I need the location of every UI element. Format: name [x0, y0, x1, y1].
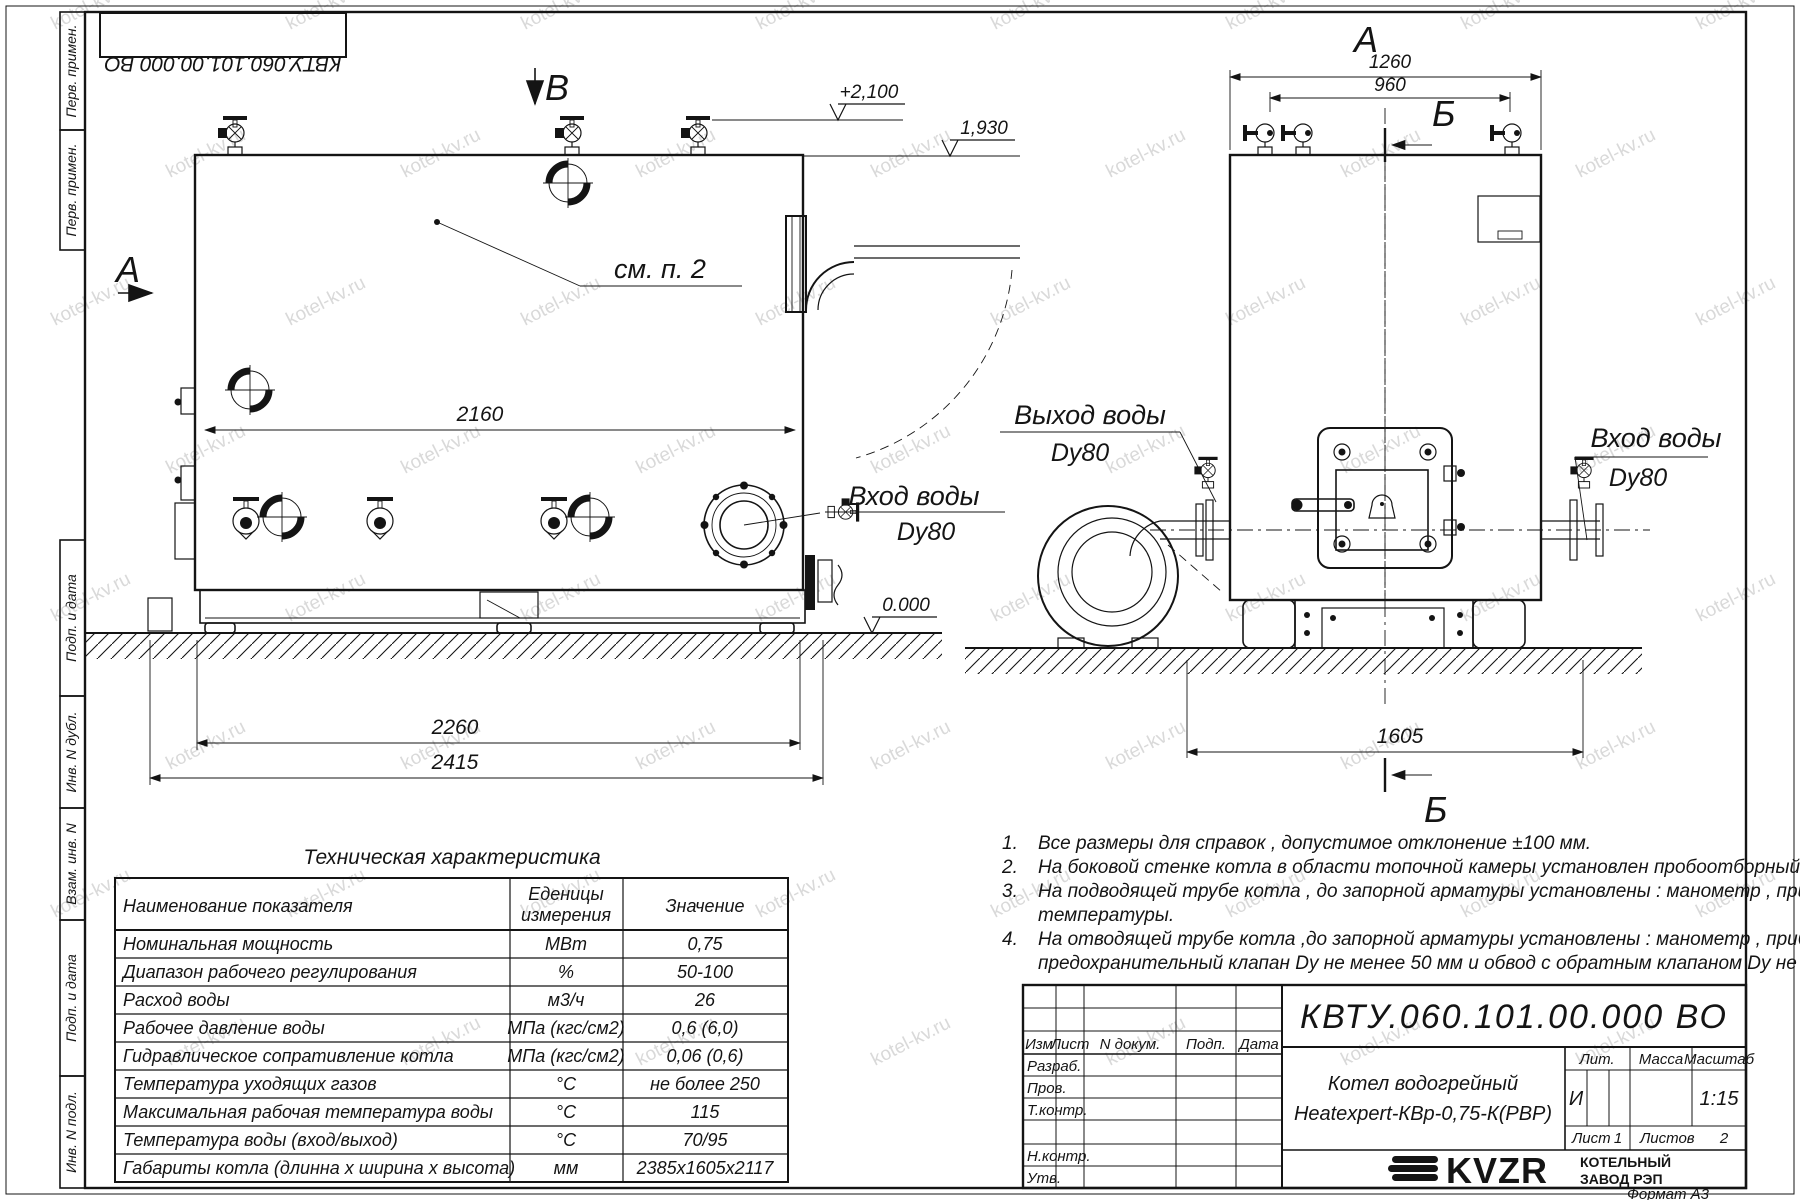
stamp-role-label: Пров. — [1027, 1080, 1067, 1097]
section-marker-B-top: Б — [1432, 93, 1455, 134]
watermark: kotel-kv.ru — [1458, 0, 1544, 34]
company-name-1: КОТЕЛЬНЫЙ — [1580, 1153, 1671, 1170]
watermark: kotel-kv.ru — [988, 0, 1074, 34]
th-units-2: измерения — [521, 905, 611, 925]
side-inlet-label: Вход воды — [848, 481, 979, 511]
company-logo: KVZR КОТЕЛЬНЫЙ ЗАВОД РЭП — [1388, 1150, 1671, 1191]
row-units: °С — [556, 1074, 577, 1094]
strip-bottom-0: Подп. и дата — [63, 574, 79, 662]
row-name: Номинальная мощность — [123, 934, 333, 954]
row-value: 70/95 — [682, 1130, 728, 1150]
watermark: kotel-kv.ru — [1458, 273, 1544, 331]
stamp-header-cell: Подп. — [1186, 1036, 1226, 1053]
tech-table: Техническая характеристика Наименование … — [115, 846, 788, 1182]
sheets-value: 2 — [1719, 1130, 1729, 1147]
watermark: kotel-kv.ru — [1223, 0, 1309, 34]
note-line: Все размеры для справок , допустимое отк… — [1038, 833, 1591, 854]
front-outlet-dn: Dy80 — [1051, 439, 1109, 467]
boiler-technical-drawing: kotel-kv.rukotel-kv.rukotel-kv.rukotel-k… — [0, 0, 1800, 1200]
stamp-header-cell: Изм — [1025, 1036, 1053, 1053]
see-note-label: см. п. 2 — [614, 254, 706, 284]
row-name: Температура воды (вход/выход) — [123, 1130, 398, 1150]
watermark: kotel-kv.ru — [1693, 273, 1779, 331]
watermark: kotel-kv.ru — [868, 1013, 954, 1071]
row-units: МВт — [545, 934, 587, 954]
view-marker-B: В — [545, 67, 569, 108]
note-number: 3. — [1002, 881, 1018, 902]
watermark: kotel-kv.ru — [753, 865, 839, 923]
sheets-label: Листов — [1639, 1130, 1695, 1147]
row-name: Рабочее давление воды — [123, 1018, 325, 1038]
watermark: kotel-kv.ru — [633, 125, 719, 183]
row-value: 115 — [691, 1102, 721, 1122]
watermark: kotel-kv.ru — [283, 273, 369, 331]
watermark: kotel-kv.ru — [1223, 569, 1309, 627]
strip-top-0: Перв. примен. — [63, 24, 79, 117]
dim-2415: 2415 — [431, 751, 479, 774]
view-marker-A-left: А — [114, 249, 140, 290]
watermark: kotel-kv.ru — [518, 273, 604, 331]
strip-bottom-2: Взам. инв. N — [63, 822, 79, 904]
row-units: % — [558, 962, 574, 982]
row-units: °С — [556, 1102, 577, 1122]
watermark: kotel-kv.ru — [283, 0, 369, 34]
th-units-1: Еденицы — [528, 884, 603, 904]
watermark: kotel-kv.ru — [988, 569, 1074, 627]
elevation-mid: 1,930 — [960, 118, 1008, 139]
mass-header: Масса — [1639, 1051, 1683, 1068]
stamp-role-label: Разраб. — [1027, 1058, 1081, 1075]
row-value: 0,06 (0,6) — [666, 1046, 743, 1066]
watermark: kotel-kv.ru — [633, 717, 719, 775]
watermark: kotel-kv.ru — [163, 125, 249, 183]
view-marker-A-top: А — [1352, 19, 1378, 60]
sheet-value: 1 — [1614, 1130, 1622, 1147]
watermark: kotel-kv.ru — [163, 421, 249, 479]
row-name: Температура уходящих газов — [123, 1074, 377, 1094]
row-units: МПа (кгс/см2) — [507, 1018, 625, 1038]
dim-2160: 2160 — [456, 403, 504, 426]
note-line: На отводящей трубе котла ,до запорной ар… — [1038, 929, 1800, 950]
stamp-role-label: Т.контр. — [1027, 1102, 1088, 1119]
scale-header: Масштаб — [1684, 1051, 1755, 1068]
row-name: Диапазон рабочего регулирования — [121, 962, 417, 982]
watermark: kotel-kv.ru — [1338, 125, 1424, 183]
watermark: kotel-kv.ru — [1573, 717, 1659, 775]
row-units: м3/ч — [548, 990, 585, 1010]
watermark: kotel-kv.ru — [753, 273, 839, 331]
th-value: Значение — [665, 896, 744, 916]
watermark: kotel-kv.ru — [1458, 569, 1544, 627]
stamp-header-cell: N докум. — [1100, 1036, 1161, 1053]
front-inlet-label: Вход воды — [1590, 423, 1721, 453]
watermark: kotel-kv.ru — [163, 717, 249, 775]
strip-top-1: Перв. примен. — [63, 143, 79, 236]
row-name: Расход воды — [123, 990, 230, 1010]
format-label: Формат А3 — [1627, 1186, 1710, 1200]
stamp-header-cell: Дата — [1237, 1036, 1279, 1053]
litera-header: Лит. — [1578, 1051, 1614, 1068]
watermark: kotel-kv.ru — [518, 0, 604, 34]
row-value: 50-100 — [677, 962, 733, 982]
front-inlet-dn: Dy80 — [1609, 464, 1667, 492]
row-value: 2385х1605х2117 — [636, 1158, 775, 1178]
note-number: 2. — [1001, 857, 1018, 878]
front-outlet-label: Выход воды — [1014, 400, 1166, 430]
watermark: kotel-kv.ru — [1693, 0, 1779, 34]
stamp-role-label: Утв. — [1026, 1170, 1061, 1187]
watermark: kotel-kv.ru — [868, 717, 954, 775]
row-value: 0,6 (6,0) — [671, 1018, 738, 1038]
watermark: kotel-kv.ru — [1693, 569, 1779, 627]
note-line: предохранительный клапан Dу не менее 50 … — [1038, 953, 1800, 974]
watermark: kotel-kv.ru — [753, 0, 839, 34]
product-title-1: Котел водогрейный — [1328, 1073, 1518, 1095]
dim-960: 960 — [1374, 75, 1406, 96]
row-value: 26 — [694, 990, 716, 1010]
row-units: °С — [556, 1130, 577, 1150]
logo-text: KVZR — [1446, 1150, 1548, 1191]
row-units: мм — [554, 1158, 579, 1178]
litera-value: И — [1569, 1088, 1584, 1110]
th-name: Наименование показателя — [123, 896, 353, 916]
row-units: МПа (кгс/см2) — [507, 1046, 625, 1066]
stamp-header-cell: Лист — [1050, 1036, 1090, 1053]
section-marker-B-bottom: Б — [1424, 789, 1447, 830]
row-value: 0,75 — [687, 934, 723, 954]
product-title-2: Heatexpert-КВр-0,75-К(РВР) — [1294, 1103, 1552, 1125]
title-block: КВТУ.060.101.00.000 ВО Котел водогрейный… — [1023, 985, 1755, 1200]
scale-value: 1:15 — [1700, 1088, 1740, 1110]
doc-number: КВТУ.060.101.00.000 ВО — [1300, 998, 1728, 1036]
note-line: На боковой стенке котла в области топочн… — [1038, 857, 1800, 878]
table-title: Техническая характеристика — [303, 846, 600, 869]
watermark: kotel-kv.ru — [633, 421, 719, 479]
outlet-pipe — [1130, 457, 1230, 592]
note-number: 1. — [1002, 833, 1018, 854]
strip-bottom-3: Подп. и дата — [63, 954, 79, 1042]
elevation-top: +2,100 — [840, 82, 899, 103]
watermark: kotel-kv.ru — [1573, 125, 1659, 183]
watermark: kotel-kv.ru — [1103, 717, 1189, 775]
watermark: kotel-kv.ru — [868, 125, 954, 183]
strip-bottom-1: Инв. N дубл. — [63, 711, 79, 792]
doc-number-rotated: КВТУ.060.101.00.000 ВО — [104, 52, 341, 75]
dim-2260: 2260 — [431, 716, 479, 739]
watermark: kotel-kv.ru — [1103, 125, 1189, 183]
row-name: Габариты котла (длинна х ширина х высота… — [123, 1158, 515, 1178]
notes: 1.Все размеры для справок , допустимое о… — [1001, 833, 1800, 974]
watermark: kotel-kv.ru — [1223, 273, 1309, 331]
dim-1605: 1605 — [1377, 725, 1424, 748]
company-name-2: ЗАВОД РЭП — [1580, 1171, 1663, 1187]
row-value: не более 250 — [650, 1074, 760, 1094]
watermark: kotel-kv.ru — [398, 421, 484, 479]
front-view: 1260 960 А Б Выход воды Dy80 Вход воды D… — [965, 19, 1722, 830]
note-line: На подводящей трубе котла , до запорной … — [1038, 881, 1800, 902]
note-line: температуры. — [1038, 905, 1174, 926]
elevation-zero: 0.000 — [882, 595, 930, 616]
watermark: kotel-kv.ru — [398, 125, 484, 183]
row-name: Максимальная рабочая температура воды — [123, 1102, 493, 1122]
drawing-sheet: kotel-kv.rukotel-kv.rukotel-kv.rukotel-k… — [0, 0, 1800, 1200]
side-inlet-dn: Dy80 — [897, 518, 955, 546]
row-name: Гидравлическое сопративление котла — [123, 1046, 454, 1066]
strip-bottom-4: Инв. N подл. — [63, 1091, 79, 1173]
stamp-role-label: Н.контр. — [1027, 1148, 1091, 1165]
sheet-label: Лист — [1571, 1130, 1611, 1147]
note-number: 4. — [1002, 929, 1018, 950]
